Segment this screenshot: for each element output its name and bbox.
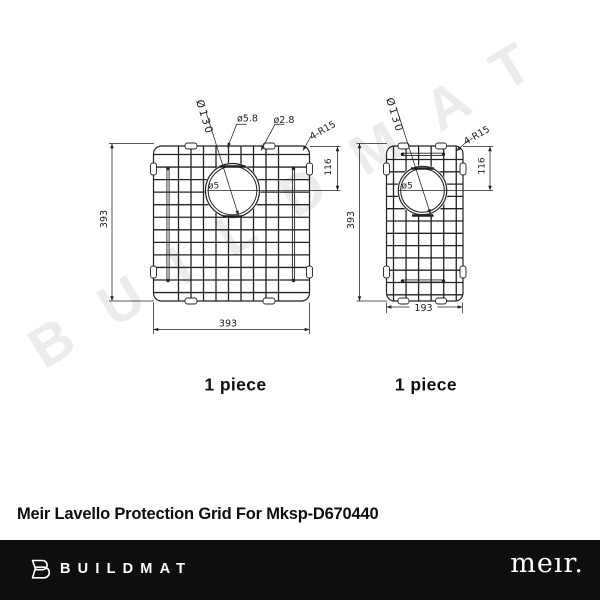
left-frame-wire-label: ø5.8 bbox=[237, 114, 258, 125]
left-hole-offset-label: 116 bbox=[324, 158, 334, 175]
buildmat-wordmark: BUILDMAT bbox=[60, 561, 192, 577]
foot-dot bbox=[442, 153, 445, 156]
right-quantity-label: 1 piece bbox=[395, 375, 457, 395]
foot-dot bbox=[401, 279, 404, 282]
foot-dot bbox=[401, 153, 404, 156]
technical-drawing: BUILDMAT Ø130 ø5.8 ø2.8 4-R15 116 393 39… bbox=[0, 0, 600, 540]
mounting-clip bbox=[460, 163, 466, 175]
product-title: Meir Lavello Protection Grid For Mksp-D6… bbox=[17, 505, 378, 524]
left-height-label: 393 bbox=[99, 210, 110, 228]
watermark-text: BUILDMAT bbox=[18, 10, 577, 381]
foot-dot bbox=[166, 167, 169, 170]
foot-dot bbox=[442, 279, 445, 282]
mounting-clip bbox=[185, 143, 197, 149]
foot-dot bbox=[166, 279, 169, 282]
mounting-clip bbox=[185, 298, 197, 304]
foot-dot bbox=[292, 279, 295, 282]
right-width-label: 193 bbox=[414, 303, 432, 314]
left-quantity-label: 1 piece bbox=[204, 375, 266, 395]
mounting-clip bbox=[460, 266, 466, 278]
buildmat-icon bbox=[30, 556, 52, 582]
mounting-clip bbox=[398, 143, 409, 149]
mounting-clip bbox=[384, 266, 390, 278]
mounting-clip bbox=[384, 163, 390, 175]
buildmat-logo: BUILDMAT bbox=[30, 556, 192, 582]
mounting-clip bbox=[398, 298, 409, 304]
mounting-clip bbox=[307, 266, 313, 278]
mounting-clip bbox=[436, 143, 447, 149]
leader-line bbox=[228, 124, 247, 147]
right-height-label: 393 bbox=[346, 211, 357, 229]
mounting-clip bbox=[151, 266, 157, 278]
left-width-label: 393 bbox=[219, 319, 237, 330]
left-cross-wire-label: ø2.8 bbox=[274, 115, 295, 126]
right-wire-diameter-label: ø5 bbox=[402, 182, 413, 192]
mounting-clip bbox=[307, 163, 313, 175]
left-wire-diameter-label: ø5 bbox=[208, 182, 219, 192]
product-drawing-page: BUILDMAT Ø130 ø5.8 ø2.8 4-R15 116 393 39… bbox=[0, 0, 600, 600]
meir-logo: meır. bbox=[510, 548, 584, 579]
mounting-clip bbox=[151, 163, 157, 175]
left-hole-diameter-label: Ø130 bbox=[193, 98, 215, 136]
foot-dot bbox=[292, 167, 295, 170]
right-hole-offset-label: 116 bbox=[478, 157, 488, 174]
mounting-clip bbox=[263, 298, 275, 304]
mounting-clip bbox=[436, 298, 447, 304]
